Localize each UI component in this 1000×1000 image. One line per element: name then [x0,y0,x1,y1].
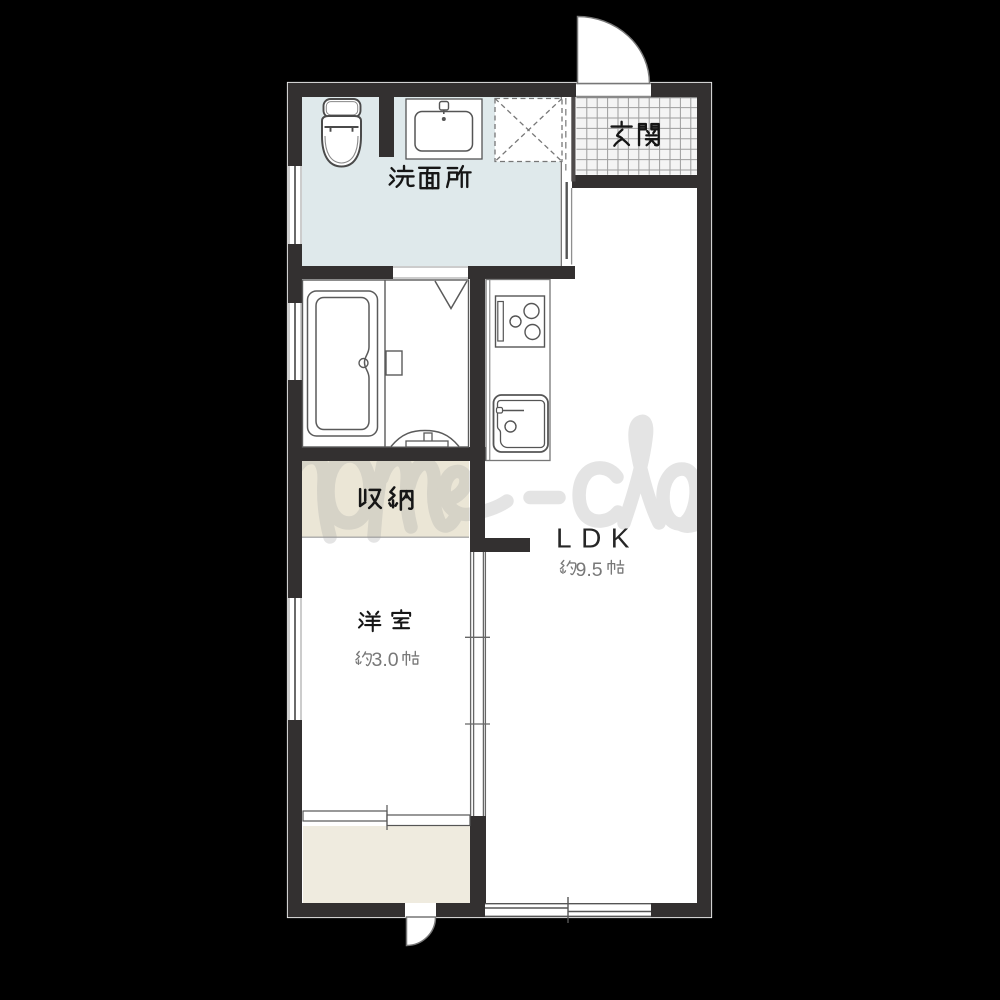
svg-text:9.5: 9.5 [576,559,603,581]
svg-text:3.0: 3.0 [372,649,399,671]
svg-text:LDK: LDK [556,523,639,554]
